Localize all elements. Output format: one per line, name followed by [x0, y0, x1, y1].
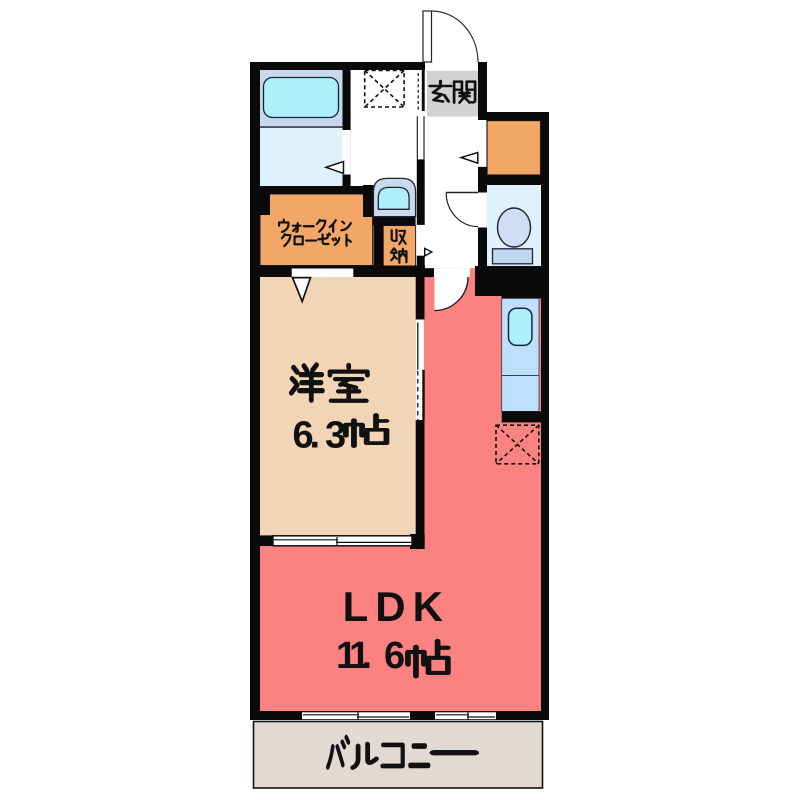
svg-text:.: .: [362, 635, 373, 677]
svg-text:LDK: LDK: [343, 583, 450, 630]
svg-text:6: 6: [384, 635, 405, 677]
svg-text:.: .: [310, 415, 321, 457]
